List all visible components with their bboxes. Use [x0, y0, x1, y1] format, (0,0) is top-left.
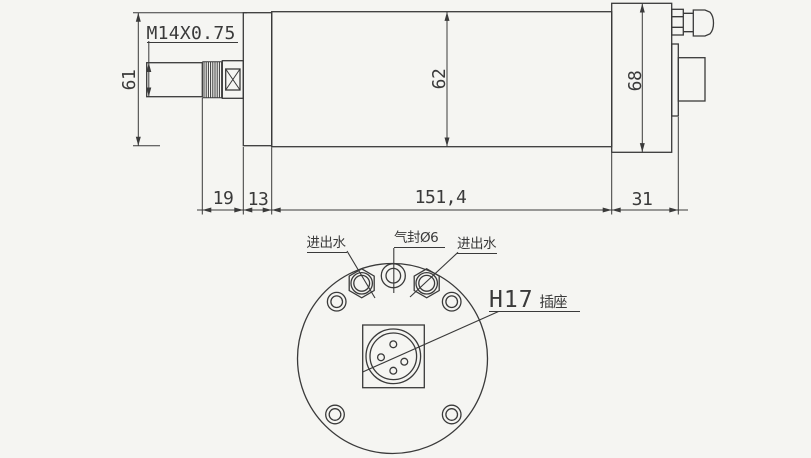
shaft-outline: [147, 63, 203, 97]
dim-rear-diameter: 68: [627, 61, 645, 101]
end-view-linework: [298, 248, 499, 454]
socket-pin: [390, 367, 397, 374]
dim-body-diameter: 62: [431, 59, 449, 99]
water-port-right-label: 进出水: [457, 237, 497, 254]
socket-name-text: 插座: [540, 295, 567, 311]
air-seal-label: 气封Ø6: [394, 231, 445, 248]
dim-rear-length: 31: [630, 191, 654, 209]
fitting-cap: [693, 10, 713, 36]
socket-leader: [363, 312, 499, 373]
dim-shaft-thread-length: 19: [211, 190, 235, 208]
dim-nose-diameter: 61: [121, 60, 139, 100]
thread-hatch: [202, 62, 222, 98]
crossed-section-x: [226, 69, 240, 90]
thread-spec-label: M14X0.75: [147, 26, 238, 43]
socket-connector: [363, 325, 425, 388]
connector-block: [678, 58, 705, 101]
water-fitting-left: [349, 269, 374, 298]
water-port-left-label: 进出水: [307, 236, 347, 253]
socket-label: H17插座: [489, 290, 580, 312]
nose-cap-outline: [243, 13, 271, 146]
cad-drawing-canvas: M14X0.75 61 62 68 19 13 151,4 31 进出水 气封Ø…: [0, 0, 811, 458]
hose-fitting: [672, 9, 714, 36]
socket-code-text: H17: [489, 287, 534, 313]
rear-flange: [672, 44, 679, 116]
dim-nose-length: 13: [246, 191, 270, 209]
socket-pin: [378, 354, 385, 361]
dim-body-length: 151,4: [413, 189, 468, 207]
socket-pin: [390, 341, 397, 348]
socket-pin: [401, 358, 408, 365]
